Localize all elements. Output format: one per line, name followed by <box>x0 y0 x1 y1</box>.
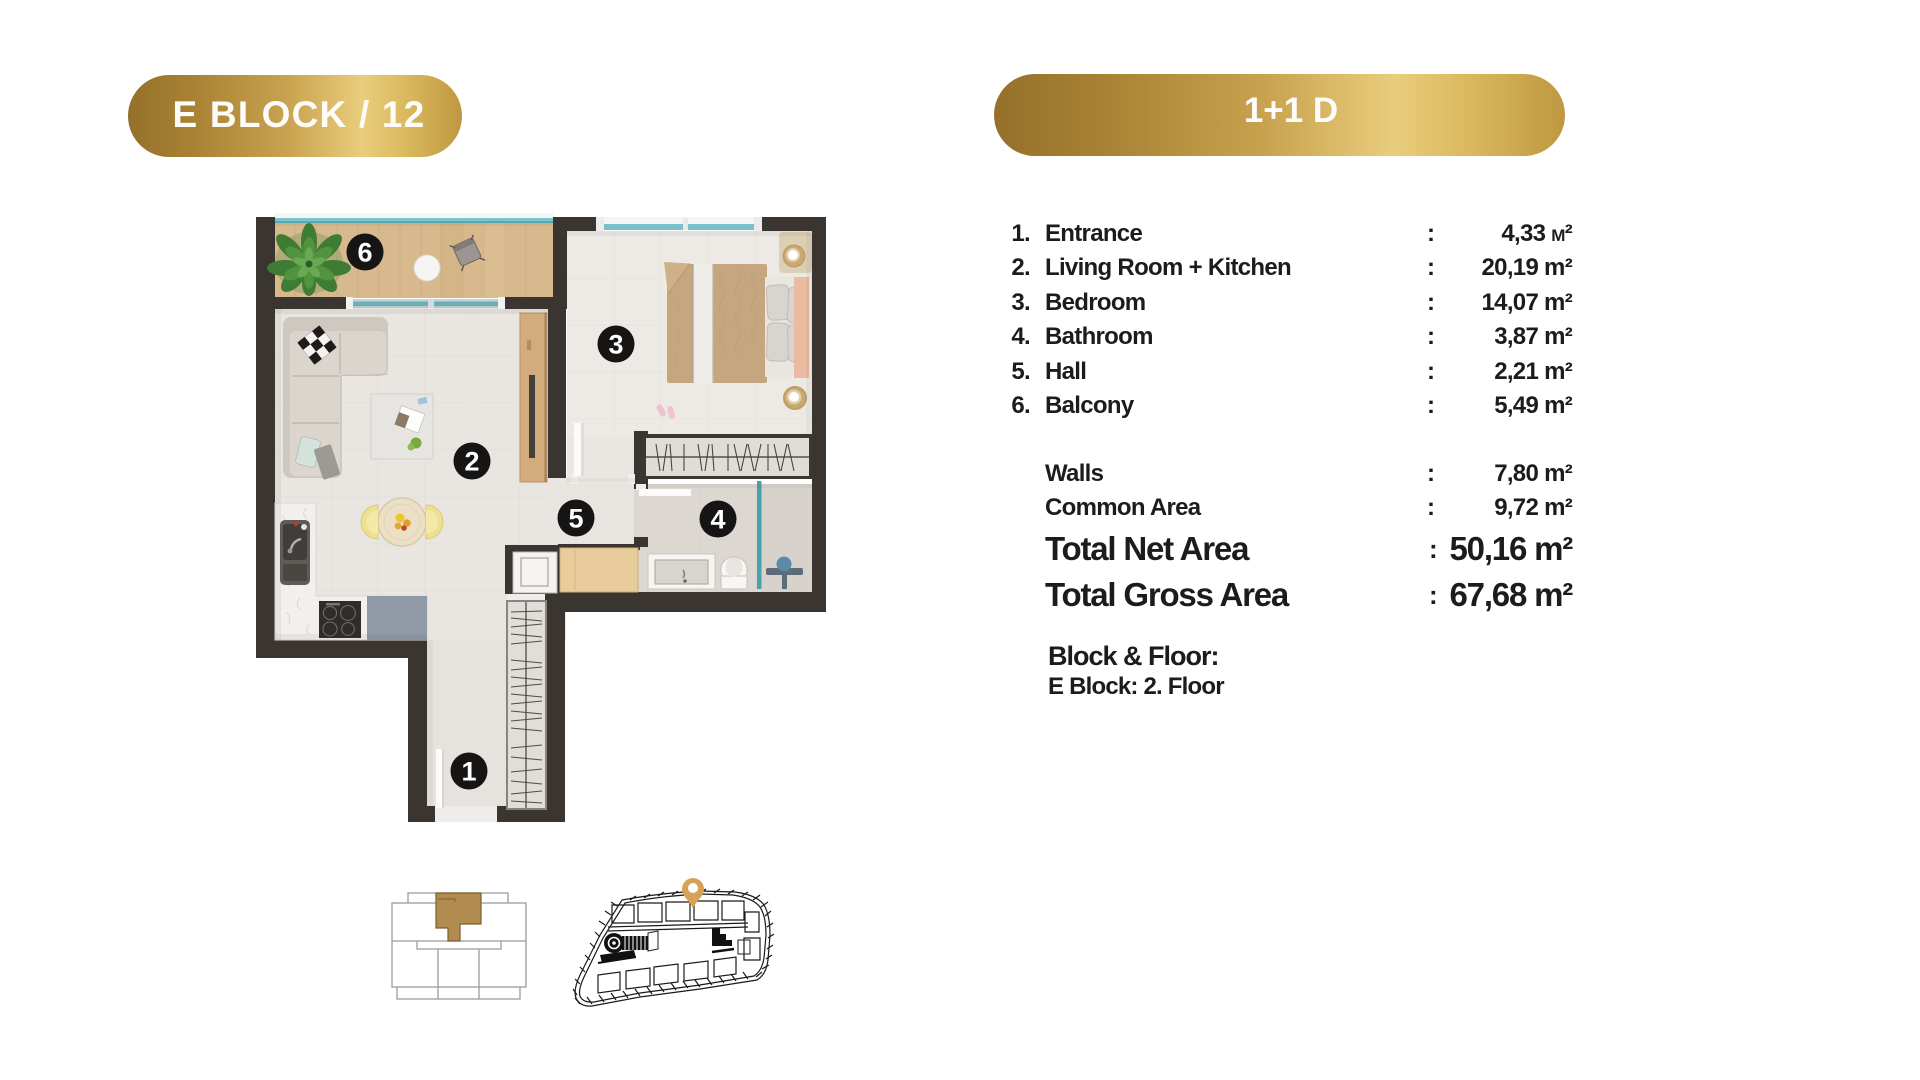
svg-text:1: 1 <box>461 757 476 787</box>
svg-text:5: 5 <box>568 504 583 534</box>
svg-text:2: 2 <box>464 447 479 477</box>
svg-text:3: 3 <box>608 330 623 360</box>
svg-text:6: 6 <box>357 238 372 268</box>
svg-text:4: 4 <box>710 505 725 535</box>
